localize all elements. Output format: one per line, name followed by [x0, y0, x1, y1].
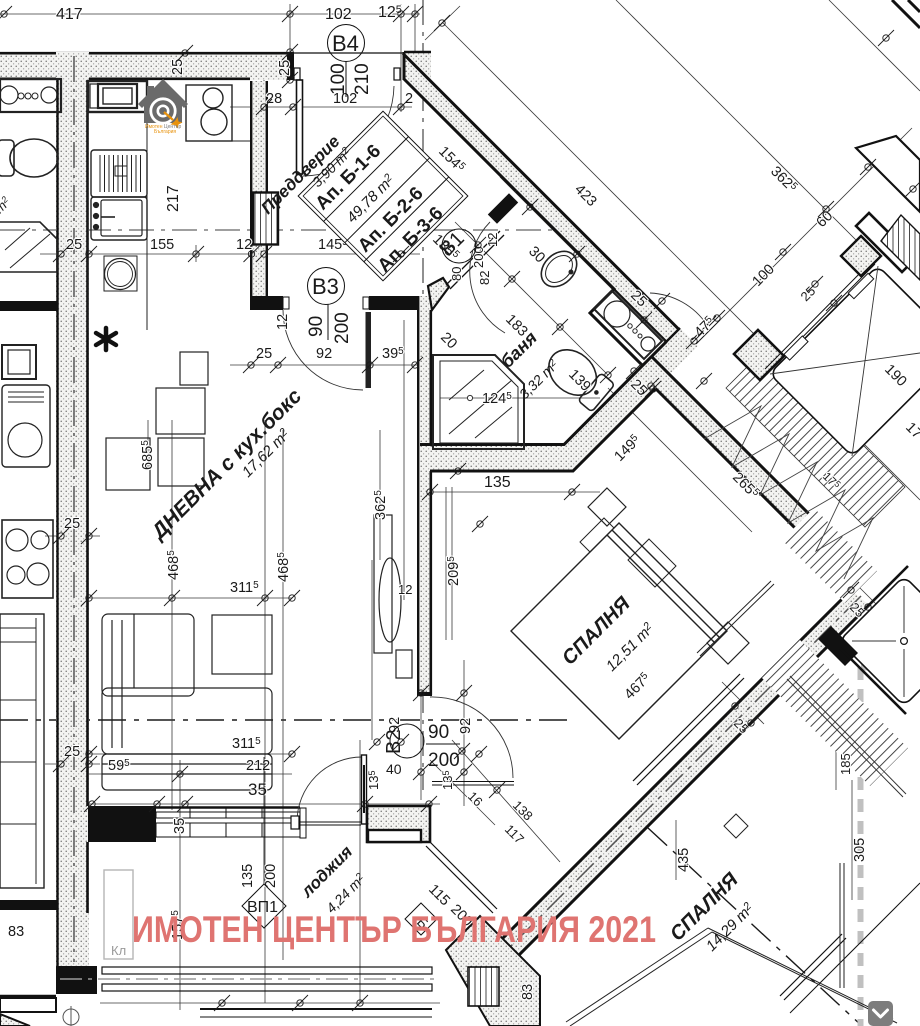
svg-text:В4: В4 [332, 31, 359, 56]
svg-text:217: 217 [165, 185, 182, 212]
svg-text:Кл: Кл [111, 943, 126, 958]
svg-text:12: 12 [398, 582, 412, 597]
svg-text:40: 40 [386, 761, 402, 777]
svg-text:90: 90 [428, 722, 449, 743]
svg-text:435: 435 [676, 848, 692, 872]
svg-text:83: 83 [520, 984, 536, 1000]
svg-text:102: 102 [325, 6, 352, 23]
svg-text:25: 25 [170, 59, 186, 75]
svg-text:90: 90 [306, 316, 327, 337]
svg-text:305: 305 [852, 838, 868, 862]
svg-text:200: 200 [428, 750, 460, 771]
svg-text:25: 25 [64, 516, 80, 532]
svg-text:212: 212 [246, 758, 270, 774]
svg-text:417: 417 [56, 6, 83, 23]
svg-text:200: 200 [263, 864, 279, 888]
svg-text:210: 210 [352, 63, 373, 95]
svg-text:ИМОТЕН ЦЕНТЪР БЪЛГАРИЯ 2021: ИМОТЕН ЦЕНТЪР БЪЛГАРИЯ 2021 [132, 909, 656, 950]
svg-text:100: 100 [328, 63, 349, 95]
svg-text:135: 135 [240, 864, 256, 888]
svg-text:В3: В3 [312, 274, 339, 299]
svg-text:25: 25 [256, 346, 272, 362]
svg-text:25: 25 [66, 237, 82, 253]
svg-text:12: 12 [236, 237, 252, 253]
svg-text:200: 200 [332, 312, 353, 344]
svg-text:92: 92 [316, 346, 332, 362]
svg-text:25: 25 [277, 60, 293, 76]
svg-text:155: 155 [150, 237, 174, 253]
svg-text:12: 12 [275, 314, 291, 330]
svg-text:12: 12 [485, 233, 500, 247]
svg-text:82: 82 [477, 271, 492, 285]
svg-text:България: България [154, 129, 176, 135]
svg-text:92: 92 [458, 718, 474, 734]
svg-text:35: 35 [172, 818, 188, 834]
svg-text:83: 83 [8, 924, 24, 940]
svg-text:25: 25 [64, 744, 80, 760]
svg-text:135: 135 [484, 474, 511, 491]
svg-text:2: 2 [405, 91, 413, 107]
svg-text:28: 28 [266, 91, 282, 107]
svg-text:185: 185 [838, 753, 853, 775]
svg-text:80: 80 [449, 267, 464, 281]
